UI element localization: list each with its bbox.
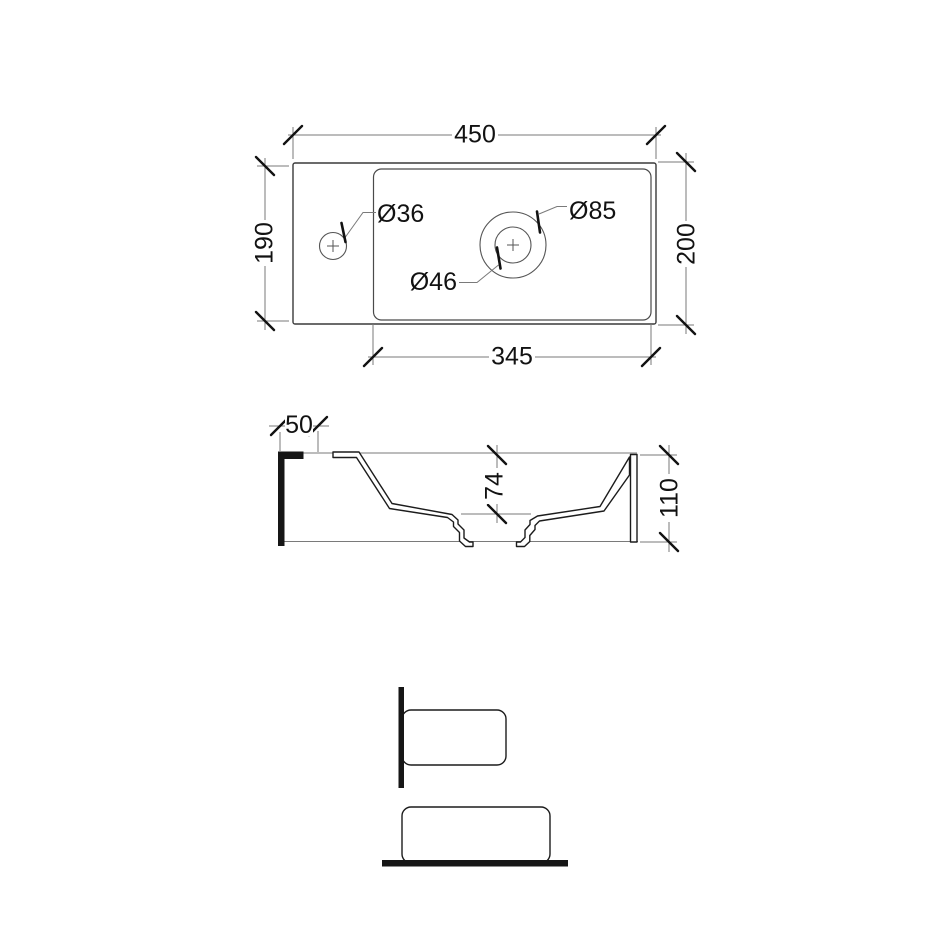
tap-hole-center-cross [327, 240, 339, 252]
leader-line [459, 265, 499, 283]
basin-front-profile [402, 807, 550, 863]
section-basin-shell-left [333, 452, 473, 547]
dimension-basin-width: 345 [364, 324, 660, 371]
leader-tick [342, 223, 346, 242]
dimension-overall-width: 450 [284, 121, 665, 160]
basin-side-profile [402, 710, 506, 765]
dimension-label-50: 50 [285, 411, 313, 439]
section-right-wall-cut [631, 455, 638, 543]
leader-line [344, 213, 376, 240]
label-waste-hole-diameter: Ø46 [410, 268, 457, 296]
dimension-label-74: 74 [481, 472, 509, 500]
label-waste-recess-diameter: Ø85 [569, 197, 616, 225]
leader-waste-hole: Ø46 [410, 248, 501, 297]
leader-waste-recess: Ø85 [537, 197, 616, 233]
dimension-shelf-width: 50 [269, 411, 329, 452]
installation-countertop-view [382, 807, 568, 867]
dimension-left-depth: 190 [251, 157, 290, 330]
dimension-label-110: 110 [656, 478, 684, 518]
washbasin-technical-drawing: 450 190 200 34 [0, 0, 950, 950]
section-view: 50 74 110 [269, 411, 684, 552]
waste-center-cross [507, 239, 519, 251]
leader-line [539, 207, 567, 215]
installation-wall-hung-view [399, 687, 507, 788]
countertop-line [382, 860, 568, 867]
dimension-right-depth: 200 [658, 153, 701, 334]
dimension-overall-height: 110 [640, 445, 684, 552]
section-left-wall-cut [278, 452, 304, 547]
leader-tick [537, 212, 540, 233]
dimension-basin-depth: 74 [461, 445, 531, 523]
dimension-label-450: 450 [454, 121, 496, 149]
dimension-label-190: 190 [251, 222, 279, 264]
plan-outer-rim [293, 163, 656, 324]
dimension-label-200: 200 [673, 223, 701, 265]
plan-view: 450 190 200 34 [251, 121, 701, 371]
wall-line [399, 687, 405, 788]
section-basin-shell-right [517, 457, 630, 547]
dimension-label-345: 345 [491, 343, 533, 371]
leader-tap-hole: Ø36 [342, 200, 425, 242]
label-tap-hole-diameter: Ø36 [377, 200, 424, 228]
